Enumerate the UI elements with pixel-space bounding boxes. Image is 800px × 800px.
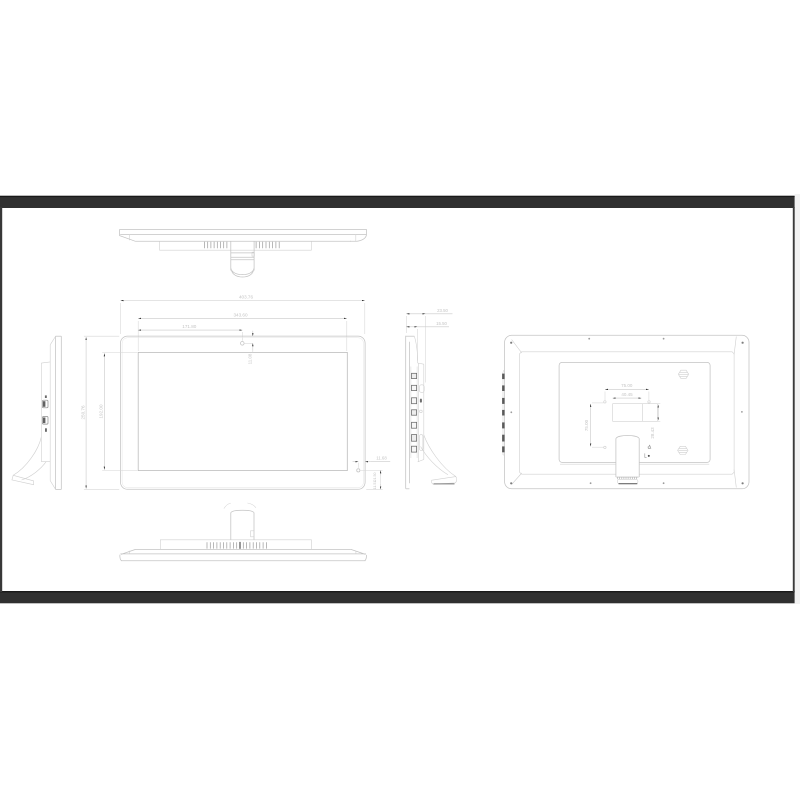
svg-text:192.00: 192.00 <box>99 404 104 418</box>
svg-text:28.43: 28.43 <box>650 427 655 439</box>
svg-text:15.50: 15.50 <box>436 321 447 326</box>
svg-text:403.76: 403.76 <box>239 295 253 300</box>
svg-text:250.76: 250.76 <box>80 405 85 419</box>
svg-text:23.50: 23.50 <box>437 308 448 313</box>
svg-text:21.50: 21.50 <box>373 473 377 482</box>
svg-text:40.45: 40.45 <box>621 392 633 397</box>
svg-text:11.08: 11.08 <box>247 353 252 364</box>
svg-text:171.80: 171.80 <box>182 324 196 329</box>
svg-text:11.68: 11.68 <box>376 456 387 461</box>
svg-text:75.00: 75.00 <box>584 419 589 431</box>
svg-text:75.00: 75.00 <box>621 383 633 388</box>
svg-text:343.60: 343.60 <box>233 312 247 317</box>
svg-text:11.51: 11.51 <box>373 481 377 490</box>
